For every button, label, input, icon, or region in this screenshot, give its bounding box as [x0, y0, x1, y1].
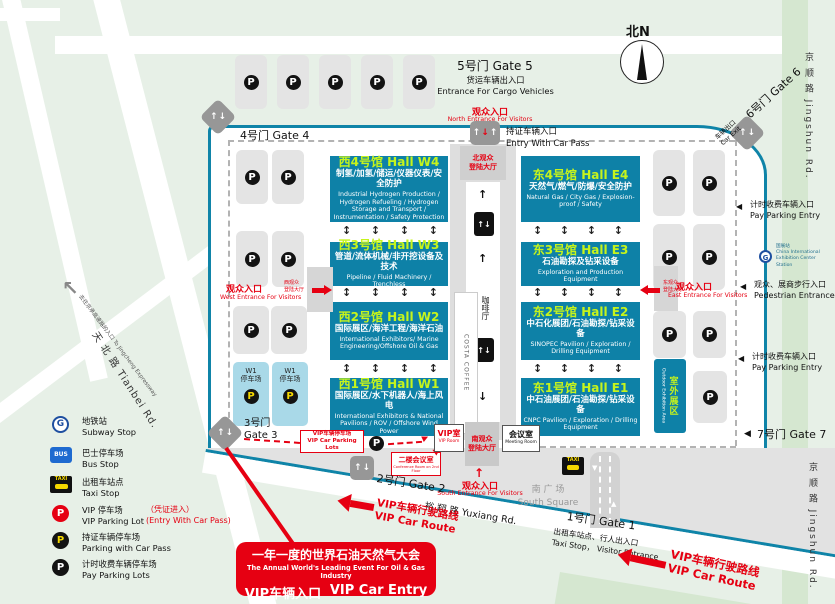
parking-icon: P: [702, 250, 717, 265]
hall-w1: 西1号馆 Hall W1 国际展区/水下机器人/海上风电 Internation…: [330, 378, 448, 436]
vip-entry-banner: 一年一度的世界石油天然气大会 The Annual World's Leadin…: [236, 542, 436, 596]
parking-icon: P: [370, 75, 385, 90]
south-lobby-label: 南观众 登陆大厅: [468, 435, 496, 453]
lane-arrow-down: ▼: [592, 464, 597, 472]
hall-subtitle: 国际展区/海洋工程/海洋石油: [332, 325, 446, 335]
road-top: [55, 36, 785, 54]
road-left: [0, 0, 108, 382]
parking-lot: P: [277, 55, 309, 109]
legend-vip-note: （凭证进入） (Entry With Car Pass): [146, 505, 231, 527]
corridor-arrows: ↕↕↕↕: [342, 362, 438, 375]
banner-vip-entry-zh: VIP车辆入口: [245, 583, 321, 602]
parking-lot: P: [693, 311, 726, 358]
hall-e4: 东4号馆 Hall E4 天然气/燃气/防爆/安全防护 Natural Gas …: [521, 156, 640, 222]
parking-lot: P: [272, 150, 304, 204]
vip-room: VIP室 VIP Room: [434, 424, 464, 452]
hall-title: 东2号馆 Hall E2: [523, 306, 638, 319]
subway-station-icon: G: [759, 250, 772, 263]
hall-title: 东1号馆 Hall E1: [523, 382, 638, 395]
compass-label: 北N: [626, 21, 650, 40]
parking-icon: P: [281, 252, 296, 267]
parking-icon: P: [702, 176, 717, 191]
coffee-shop-name: COSTA COFFEE: [463, 334, 470, 391]
parking-pass-icon: P: [244, 389, 259, 404]
parking-icon: P: [369, 436, 384, 451]
parking-icon: P: [286, 75, 301, 90]
north-lobby: 北观众 登陆大厅: [460, 146, 506, 180]
outdoor-area-label-en: Outdoor Exhibition Area: [661, 368, 666, 423]
parking-lot: P: [653, 311, 686, 358]
south-entrance-label-en: South Entrance For Visitors: [430, 490, 530, 497]
legend-pass-parking-label: 持证车辆停车场Parking with Car Pass: [82, 532, 171, 554]
conference-2f-label-zh: 二楼会议室: [392, 455, 440, 465]
expressway-arrow: ↖: [62, 276, 79, 300]
hall-subtitle: 制氢/加氢/储运/仪器仪表/安全防护: [332, 170, 446, 190]
parking-icon: P: [412, 75, 427, 90]
hall-e3: 东3号馆 Hall E3 石油勘探及钻采设备 Exploration and P…: [521, 242, 640, 286]
parking-pass-icon: P: [283, 389, 298, 404]
road-jingshun-label-bottom: 京 顺 路 Jingshun Rd.: [806, 462, 819, 597]
lane-arrow-up: ↑: [478, 188, 487, 201]
gate-7-label: 7号门 Gate 7: [757, 426, 826, 442]
left-triangle-icon: ◀: [740, 282, 746, 291]
gate-4-label: 4号门 Gate 4: [240, 127, 309, 143]
lane-arrow-up: ↑: [478, 252, 487, 265]
hall-desc-en: International Exhibitors/ Marine Enginee…: [332, 336, 446, 352]
parking-icon: P: [662, 327, 677, 342]
corridor-arrows: ↕↕↕↕: [533, 362, 623, 375]
legend-bus-icon: BUS: [50, 447, 72, 463]
outdoor-area-label-zh: 室外展区: [667, 376, 680, 416]
banner-title-zh: 一年一度的世界石油天然气大会: [236, 546, 436, 563]
parking-icon: P: [245, 252, 260, 267]
parking-lot: P: [236, 150, 268, 204]
pay-parking-entry-label: 计时收费车辆入口 Pay Parking Entry: [750, 199, 835, 221]
corridor-arrows: ↕↕↕↕: [342, 286, 438, 299]
legend-subway-icon: G: [52, 416, 69, 433]
hall-title: 西1号馆 Hall W1: [332, 378, 446, 391]
parking-icon: P: [662, 176, 677, 191]
north-gate-icon: ↑↓↑: [470, 121, 500, 145]
south-lobby: 南观众 登陆大厅: [465, 422, 499, 466]
hall-subtitle: 国际展区/水下机器人/海上风电: [332, 392, 446, 412]
hall-title: 东3号馆 Hall E3: [523, 244, 638, 257]
coffee-shop: COSTA COFFEE: [454, 292, 478, 434]
vip-room-label-zh: VIP室: [435, 428, 463, 439]
outdoor-exhibition-area: Outdoor Exhibition Area 室外展区: [654, 359, 686, 433]
hall-subtitle: 管道/流体机械/非开挖设备及技术: [332, 253, 446, 273]
west-entrance-label-en: West Entrance For Visitors: [220, 294, 312, 301]
station-label: 国展站 China International Exhibition Cente…: [776, 244, 835, 269]
parking-lot: P: [693, 150, 725, 216]
vip-parking-label: VIP车辆停车场 VIP Car Parking Lots: [301, 431, 363, 453]
parking-lot: P: [235, 55, 267, 109]
car-pass-entry-label: 持证车辆入口 Entry With Car Pass: [506, 127, 601, 151]
parking-lot: P: [272, 231, 304, 287]
left-triangle-icon: ◀: [736, 202, 742, 211]
hall-desc-en: Industrial Hydrogen Production / Hydroge…: [332, 191, 446, 222]
west-entrance-arrow: [312, 288, 324, 293]
parking-lot: P: [233, 306, 269, 354]
parking-icon: P: [244, 323, 259, 338]
north-lobby-label: 北观众 登陆大厅: [469, 154, 497, 172]
conference-2f-label-en: Conference Room on 2nd Floor: [392, 465, 440, 473]
hall-subtitle: 石油勘探及钻采设备: [523, 258, 638, 268]
corridor-arrows: ↕↕↕↕: [533, 286, 623, 299]
banner-title-en: The Annual World's Leading Event For Oil…: [236, 564, 436, 580]
hall-subtitle: 中石化展团/石油勘探/钻采设备: [523, 320, 638, 340]
vip-room-label-en: VIP Room: [435, 439, 463, 444]
pedestrian-entrance-label: 观众、展商步行入口 Pedestrian Entrance: [754, 279, 835, 301]
corridor-arrows: ↕↕↕↕: [533, 224, 623, 237]
banner-vip-entry-en: VIP Car Entry: [330, 583, 427, 602]
parking-icon: P: [702, 327, 717, 342]
parking-icon: P: [244, 75, 259, 90]
hall-w4: 西4号馆 Hall W4 制氢/加氢/储运/仪器仪表/安全防护 Industri…: [330, 156, 448, 222]
legend-pay-parking-icon: P: [52, 559, 69, 576]
meeting-room-label-en: Meeting Room: [503, 440, 539, 445]
east-entrance-arrow: [648, 288, 660, 293]
meeting-room-label-zh: 会议室: [503, 429, 539, 440]
left-triangle-icon: ◀: [738, 354, 744, 363]
gate-5-label: 5号门 Gate 5: [455, 57, 535, 74]
legend-pay-parking-label: 计时收费车辆停车场Pay Parking Lots: [82, 559, 157, 581]
legend-taxi-icon: TAXI: [50, 476, 72, 493]
hall-desc-en: Natural Gas / City Gas / Explosion-proof…: [523, 194, 638, 210]
parking-icon: P: [282, 323, 297, 338]
cargo-entrance-label: 货运车辆出入口 Entrance For Cargo Vehicles: [428, 75, 563, 97]
elevator-icon: ↑↓: [474, 212, 494, 236]
road-jingshun-label-top: 京 顺 路 Jingshun Rd.: [802, 52, 815, 187]
hall-w2: 西2号馆 Hall W2 国际展区/海洋工程/海洋石油 Internationa…: [330, 302, 448, 360]
parking-lot: P: [236, 231, 268, 287]
hall-title: 西3号馆 Hall W3: [332, 239, 446, 252]
w1-parking-lot: W1 停车场 P: [272, 362, 308, 426]
w1-parking-lot: W1 停车场 P: [233, 362, 269, 426]
parking-lot: P: [271, 306, 307, 354]
legend-subway-label: 地铁站Subway Stop: [82, 416, 136, 438]
vip-parking-box: VIP车辆停车场 VIP Car Parking Lots: [300, 430, 364, 453]
parking-icon: P: [328, 75, 343, 90]
w1-parking-label: W1 停车场: [233, 367, 269, 384]
parking-icon: P: [662, 250, 677, 265]
legend-taxi-label: 出租车站点Taxi Stop: [82, 477, 124, 499]
parking-lot: P: [319, 55, 351, 109]
legend-bus-label: 巴士停车场Bus Stop: [82, 448, 124, 470]
left-triangle-icon: ◀: [744, 429, 751, 439]
hall-title: 西4号馆 Hall W4: [332, 156, 446, 169]
legend-pass-parking-icon: P: [52, 532, 69, 549]
lane-arrow-down: ↓: [478, 390, 487, 403]
south-entrance-arrow: ↑: [474, 466, 484, 480]
parking-icon: P: [245, 170, 260, 185]
legend-vip-parking-icon: P: [52, 505, 69, 522]
parking-lot: P: [361, 55, 393, 109]
w1-parking-label: W1 停车场: [272, 367, 308, 384]
hall-e2: 东2号馆 Hall E2 中石化展团/石油勘探/钻采设备 SINOPEC Pav…: [521, 302, 640, 360]
pay-parking-entry-label: 计时收费车辆入口 Pay Parking Entry: [752, 351, 835, 373]
hall-subtitle: 天然气/燃气/防爆/安全防护: [523, 183, 638, 193]
legend-vip-parking-label: VIP 停车场VIP Parking Lot: [82, 505, 144, 527]
compass-icon: [620, 40, 664, 84]
west-lobby-label: 西观众 登陆大厅: [284, 280, 310, 293]
hall-desc-en: Exploration and Production Equipment: [523, 269, 638, 285]
taxi-icon: TAXI: [562, 457, 584, 475]
hall-title: 西2号馆 Hall W2: [332, 311, 446, 324]
north-entrance-label-en: North Entrance For Visitors: [440, 116, 540, 123]
gate-2-icon: ↑↓: [350, 456, 374, 480]
parking-icon: P: [281, 170, 296, 185]
hall-desc-en: CNPC Pavilion / Exploration / Drilling E…: [523, 417, 638, 433]
corridor-arrows: ↕↕↕↕: [342, 224, 438, 237]
east-entrance-label-en: East Entrance For Visitors: [668, 292, 750, 299]
meeting-room: 会议室 Meeting Room: [502, 425, 540, 452]
hall-w3: 西3号馆 Hall W3 管道/流体机械/非开挖设备及技术 Pipeline /…: [330, 242, 448, 286]
coffee-shop-label-zh: 咖啡厅: [480, 296, 491, 320]
exhibition-center-map: P P P P P P P P P P P W1 停车场 P W1 停车场 P …: [0, 0, 835, 604]
hall-subtitle: 中石油展团/石油勘探/钻采设备: [523, 396, 638, 416]
south-square-label: 南 广 场 South Square: [516, 484, 580, 509]
parking-lot: P: [693, 371, 727, 423]
dashed-boundary-bottom: [540, 446, 736, 448]
parking-icon: P: [703, 390, 718, 405]
lane-arrow-up: ▲: [611, 500, 616, 508]
parking-lot: P: [653, 150, 685, 216]
hall-desc-en: SINOPEC Pavilion / Exploration / Drillin…: [523, 341, 638, 357]
hall-title: 东4号馆 Hall E4: [523, 169, 638, 182]
